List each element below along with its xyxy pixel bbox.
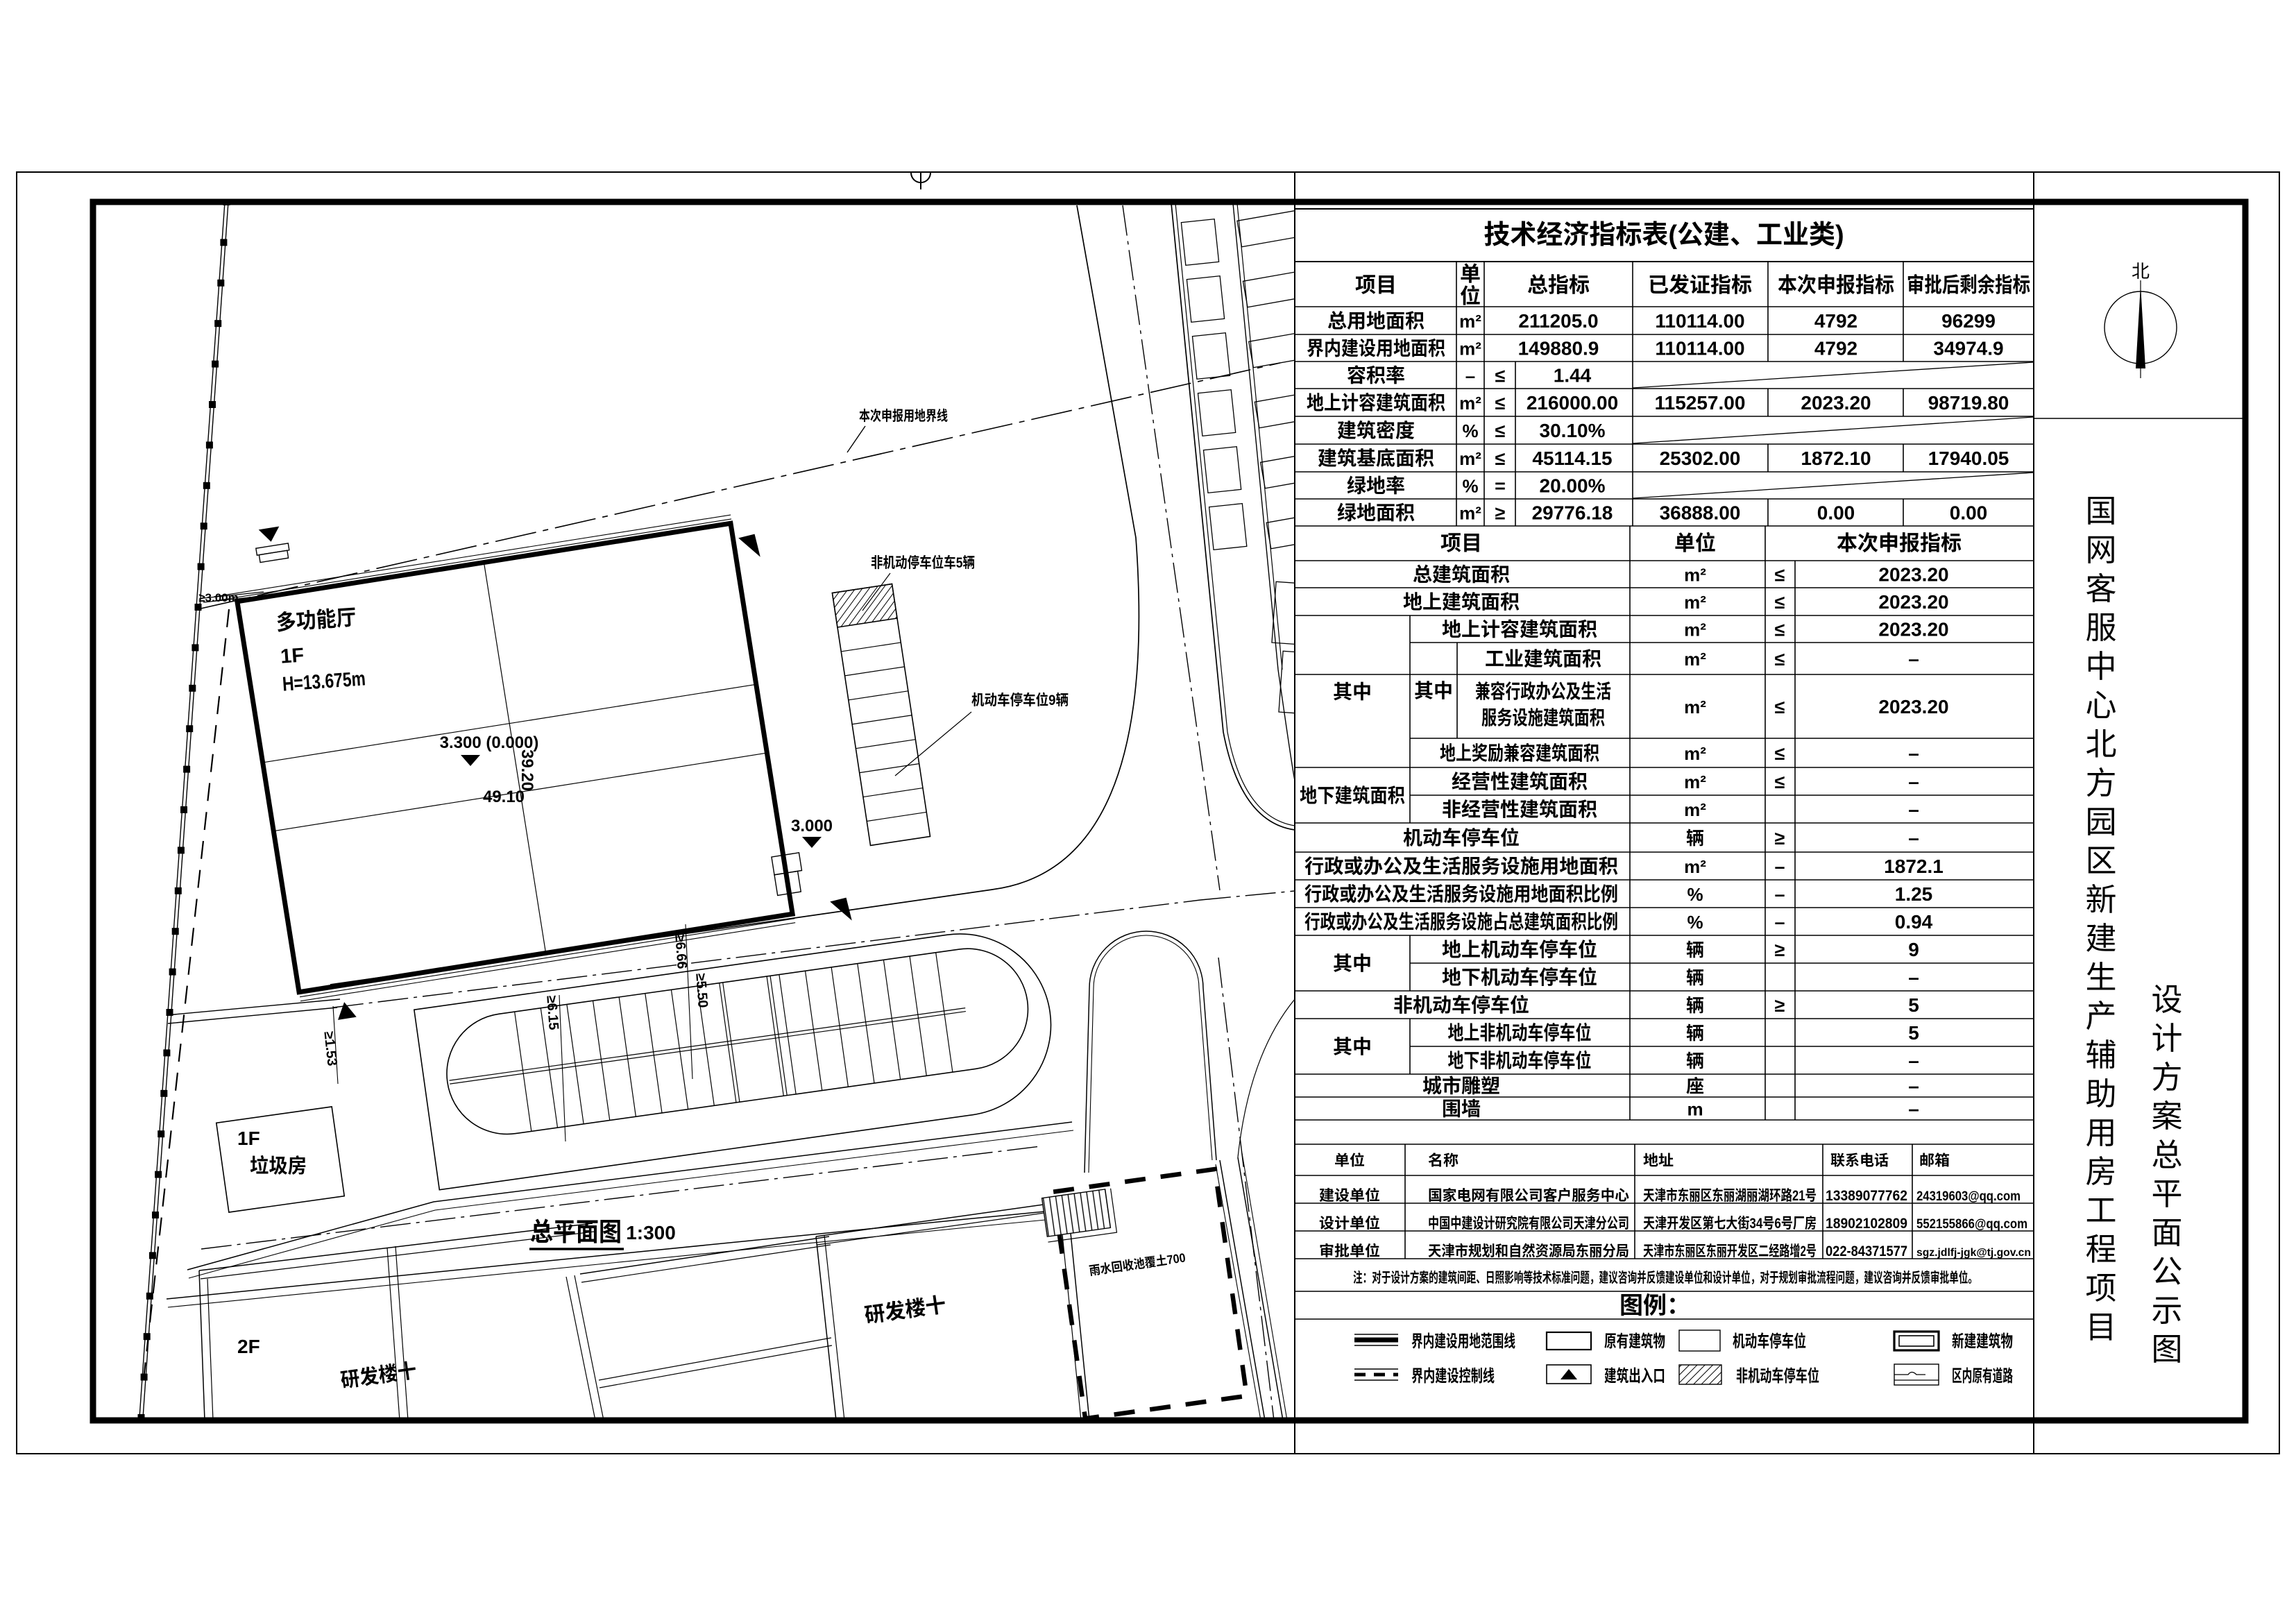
svg-text:sgz.jdlfj-jgk@tj.gov.cn: sgz.jdlfj-jgk@tj.gov.cn <box>1916 1247 2031 1259</box>
svg-text:天津市东丽区东丽开发区二经路增2号: 天津市东丽区东丽开发区二经路增2号 <box>1643 1243 1817 1259</box>
svg-text:≤: ≤ <box>1775 743 1785 764</box>
svg-text:–: – <box>1908 1098 1919 1120</box>
svg-text:地上非机动车停车位: 地上非机动车停车位 <box>1448 1021 1592 1044</box>
svg-text:m²: m² <box>1684 649 1706 670</box>
svg-text:17940.05: 17940.05 <box>1928 448 2009 469</box>
svg-text:其中: 其中 <box>1333 1036 1372 1057</box>
svg-text:绿地率: 绿地率 <box>1347 475 1405 497</box>
svg-text:注：对于设计方案的建筑间距、日照影响等技术标准问题，建议咨询: 注：对于设计方案的建筑间距、日照影响等技术标准问题，建议咨询并反馈建设单位和设计… <box>1353 1269 1978 1286</box>
svg-text:总指标: 总指标 <box>1527 274 1590 297</box>
svg-text:网: 网 <box>2085 532 2116 568</box>
svg-text:程: 程 <box>2085 1232 2116 1267</box>
svg-text:兼容行政办公及生活: 兼容行政办公及生活 <box>1475 681 1611 702</box>
svg-text:行政或办公及生活服务设施用地面积: 行政或办公及生活服务设施用地面积 <box>1304 855 1618 877</box>
svg-text:149880.9: 149880.9 <box>1518 338 1599 359</box>
svg-text:–: – <box>1774 856 1785 877</box>
svg-text:设: 设 <box>2151 982 2182 1017</box>
svg-text:心: 心 <box>2085 688 2116 723</box>
svg-text:≤: ≤ <box>1495 366 1506 386</box>
svg-text:≥6.15: ≥6.15 <box>543 995 561 1030</box>
svg-text:9: 9 <box>1908 939 1919 960</box>
svg-text:本次申报用地界线: 本次申报用地界线 <box>859 408 948 424</box>
svg-text:4792: 4792 <box>1814 310 1857 332</box>
svg-text:非机动车停车位: 非机动车停车位 <box>1393 994 1529 1016</box>
svg-text:≤: ≤ <box>1775 565 1785 586</box>
svg-text:产: 产 <box>2085 999 2116 1034</box>
svg-text:0.00: 0.00 <box>1950 502 1988 524</box>
svg-text:–: – <box>1774 912 1785 933</box>
svg-text:行政或办公及生活服务设施占总建筑面积比例: 行政或办公及生活服务设施占总建筑面积比例 <box>1304 910 1618 933</box>
svg-text:2023.20: 2023.20 <box>1878 696 1948 717</box>
svg-text:本次申报指标: 本次申报指标 <box>1778 274 1894 297</box>
svg-text:机动车停车位: 机动车停车位 <box>1403 826 1520 849</box>
svg-text:辆: 辆 <box>1686 1023 1704 1044</box>
svg-text:13389077762: 13389077762 <box>1826 1188 1907 1204</box>
svg-text:图: 图 <box>2151 1332 2182 1367</box>
svg-text:m²: m² <box>1459 393 1481 414</box>
svg-text:≤: ≤ <box>1495 448 1506 469</box>
svg-text:北: 北 <box>2132 261 2150 282</box>
svg-text:行政或办公及生活服务设施用地面积比例: 行政或办公及生活服务设施用地面积比例 <box>1304 883 1618 905</box>
svg-text:平: 平 <box>2151 1176 2182 1212</box>
svg-text:–: – <box>1908 799 1919 820</box>
svg-text:–: – <box>1908 1076 1919 1097</box>
svg-text:%: % <box>1687 912 1703 933</box>
svg-text:2023.20: 2023.20 <box>1878 619 1948 640</box>
svg-text:地上建筑面积: 地上建筑面积 <box>1403 591 1520 613</box>
svg-text:地上计容建筑面积: 地上计容建筑面积 <box>1307 392 1445 414</box>
svg-text:城市雕塑: 城市雕塑 <box>1422 1076 1500 1097</box>
svg-text:≥6.66: ≥6.66 <box>672 934 689 969</box>
svg-text:国: 国 <box>2085 493 2116 529</box>
svg-text:绿地面积: 绿地面积 <box>1337 502 1415 524</box>
svg-text:区内原有道路: 区内原有道路 <box>1952 1367 2013 1386</box>
svg-text:5: 5 <box>1908 1022 1919 1044</box>
svg-text:建筑基底面积: 建筑基底面积 <box>1318 448 1434 469</box>
svg-text:其中: 其中 <box>1333 681 1372 703</box>
svg-text:24319603@qq.com: 24319603@qq.com <box>1916 1189 2021 1204</box>
svg-text:1872.1: 1872.1 <box>1884 856 1944 877</box>
svg-text:地上机动车停车位: 地上机动车停车位 <box>1442 938 1597 960</box>
svg-text:房: 房 <box>2085 1154 2116 1189</box>
svg-text:1.44: 1.44 <box>1554 365 1592 386</box>
svg-text:机动车停车位9辆: 机动车停车位9辆 <box>971 692 1069 708</box>
svg-text:211205.0: 211205.0 <box>1518 310 1598 332</box>
svg-text:216000.00: 216000.00 <box>1527 392 1618 414</box>
svg-text:≥: ≥ <box>1495 503 1506 524</box>
svg-text:联系电话: 联系电话 <box>1830 1153 1889 1169</box>
svg-text:总: 总 <box>2151 1137 2182 1173</box>
svg-text:≤: ≤ <box>1495 420 1506 441</box>
svg-text:服: 服 <box>2085 610 2116 645</box>
svg-text:5: 5 <box>1908 994 1919 1016</box>
svg-text:辆: 辆 <box>1686 828 1704 849</box>
svg-text:非经营性建筑面积: 非经营性建筑面积 <box>1442 799 1597 820</box>
svg-text:1F: 1F <box>237 1128 260 1149</box>
svg-text:≥: ≥ <box>1775 940 1785 960</box>
svg-text:公: 公 <box>2151 1254 2182 1289</box>
svg-text:总用地面积: 总用地面积 <box>1327 310 1425 332</box>
svg-text:客: 客 <box>2085 571 2116 606</box>
svg-text:m²: m² <box>1459 448 1481 469</box>
svg-text:1F: 1F <box>280 644 305 668</box>
svg-text:110114.00: 110114.00 <box>1655 338 1744 359</box>
svg-text:m²: m² <box>1684 743 1706 764</box>
svg-text:≥: ≥ <box>1775 828 1785 849</box>
svg-text:项目: 项目 <box>1440 532 1482 555</box>
svg-text:服务设施建筑面积: 服务设施建筑面积 <box>1481 707 1605 729</box>
svg-text:18902102809: 18902102809 <box>1826 1216 1907 1232</box>
svg-text:园: 园 <box>2085 804 2116 840</box>
svg-text:–: – <box>1465 366 1475 386</box>
svg-text:39.20: 39.20 <box>518 749 536 791</box>
svg-text:0.94: 0.94 <box>1895 911 1933 933</box>
svg-text:目: 目 <box>2085 1309 2116 1345</box>
svg-text:m²: m² <box>1684 565 1706 586</box>
svg-text:邮箱: 邮箱 <box>1919 1153 1950 1169</box>
svg-text:区: 区 <box>2085 843 2116 878</box>
svg-text:新建建筑物: 新建建筑物 <box>1952 1332 2013 1351</box>
svg-text:其中: 其中 <box>1333 953 1372 974</box>
svg-text:位: 位 <box>1460 284 1481 308</box>
svg-text:项: 项 <box>2085 1271 2116 1306</box>
svg-text:中国中建设计研究院有限公司天津分公司: 中国中建设计研究院有限公司天津分公司 <box>1428 1215 1629 1232</box>
svg-text:m²: m² <box>1684 799 1706 820</box>
svg-text:图例：: 图例： <box>1619 1293 1690 1319</box>
svg-text:助: 助 <box>2085 1076 2116 1112</box>
svg-text:国家电网有限公司客户服务中心: 国家电网有限公司客户服务中心 <box>1428 1187 1629 1204</box>
svg-text:2F: 2F <box>237 1336 260 1357</box>
svg-text:≥5.50: ≥5.50 <box>692 973 710 1008</box>
svg-text:45114.15: 45114.15 <box>1532 448 1612 469</box>
svg-text:本次申报指标: 本次申报指标 <box>1837 532 1962 555</box>
svg-text:方: 方 <box>2085 765 2116 801</box>
svg-text:≤: ≤ <box>1775 772 1785 792</box>
svg-text:已发证指标: 已发证指标 <box>1648 274 1752 297</box>
svg-text:25302.00: 25302.00 <box>1660 448 1741 469</box>
svg-text:m²: m² <box>1459 503 1481 524</box>
svg-text:地下机动车停车位: 地下机动车停车位 <box>1442 966 1597 988</box>
svg-text:1:300: 1:300 <box>626 1222 676 1243</box>
svg-text:生: 生 <box>2085 960 2116 995</box>
svg-text:工业建筑面积: 工业建筑面积 <box>1485 648 1601 670</box>
svg-text:≤: ≤ <box>1775 592 1785 613</box>
svg-text:m²: m² <box>1684 772 1706 792</box>
svg-text:建筑密度: 建筑密度 <box>1337 420 1415 441</box>
svg-text:单: 单 <box>1460 263 1481 286</box>
svg-text:新: 新 <box>2085 882 2116 917</box>
svg-text:–: – <box>1908 827 1919 849</box>
svg-text:计: 计 <box>2151 1021 2182 1056</box>
svg-text:辆: 辆 <box>1686 940 1704 960</box>
svg-text:天津市规划和自然资源局东丽分局: 天津市规划和自然资源局东丽分局 <box>1428 1243 1629 1259</box>
svg-text:天津市东丽区东丽湖丽湖环路21号: 天津市东丽区东丽湖丽湖环路21号 <box>1643 1187 1817 1204</box>
svg-text:建筑出入口: 建筑出入口 <box>1604 1367 1665 1386</box>
svg-text:审批后剩余指标: 审批后剩余指标 <box>1907 274 2030 297</box>
svg-text:=: = <box>1495 476 1506 497</box>
svg-text:3.000: 3.000 <box>791 817 833 835</box>
svg-text:115257.00: 115257.00 <box>1655 392 1746 414</box>
svg-text:中: 中 <box>2085 649 2116 684</box>
svg-text:界内建设控制线: 界内建设控制线 <box>1411 1367 1495 1386</box>
svg-text:北: 北 <box>2085 726 2116 762</box>
svg-text:项目: 项目 <box>1355 274 1397 297</box>
svg-text:地上计容建筑面积: 地上计容建筑面积 <box>1442 619 1597 640</box>
svg-text:34974.9: 34974.9 <box>1933 338 2003 359</box>
svg-text:–: – <box>1774 884 1785 905</box>
svg-text:%: % <box>1462 476 1478 497</box>
svg-text:座: 座 <box>1686 1076 1704 1097</box>
svg-text:m: m <box>1687 1099 1703 1120</box>
svg-text:天津开发区第七大街34号6号厂房: 天津开发区第七大街34号6号厂房 <box>1643 1216 1817 1232</box>
svg-text:36888.00: 36888.00 <box>1660 502 1741 524</box>
svg-text:用: 用 <box>2085 1115 2116 1150</box>
svg-text:总建筑面积: 总建筑面积 <box>1413 564 1510 586</box>
svg-text:其中: 其中 <box>1414 680 1453 702</box>
svg-text:≤: ≤ <box>1495 393 1506 414</box>
svg-text:≥: ≥ <box>1775 995 1785 1016</box>
svg-text:0.00: 0.00 <box>1817 502 1855 524</box>
svg-text:建设单位: 建设单位 <box>1319 1187 1380 1204</box>
svg-text:技术经济指标表(公建、工业类): 技术经济指标表(公建、工业类) <box>1483 221 1844 250</box>
svg-text:非机动车停车位: 非机动车停车位 <box>1736 1366 1819 1386</box>
svg-text:案: 案 <box>2151 1098 2182 1134</box>
svg-text:≤: ≤ <box>1775 620 1785 640</box>
svg-text:≤: ≤ <box>1775 697 1785 717</box>
svg-text:≥3.00m: ≥3.00m <box>198 591 239 604</box>
svg-text:示: 示 <box>2151 1293 2182 1328</box>
svg-text:辆: 辆 <box>1686 995 1704 1016</box>
svg-text:–: – <box>1908 648 1919 670</box>
svg-text:容积率: 容积率 <box>1347 365 1405 386</box>
svg-text:96299: 96299 <box>1941 310 1996 332</box>
svg-text:地址: 地址 <box>1643 1153 1674 1169</box>
svg-text:m²: m² <box>1684 592 1706 613</box>
svg-text:设计单位: 设计单位 <box>1319 1215 1380 1232</box>
svg-text:2023.20: 2023.20 <box>1878 564 1948 586</box>
svg-text:%: % <box>1687 884 1703 905</box>
svg-text:原有建筑物: 原有建筑物 <box>1604 1332 1665 1351</box>
svg-text:m²: m² <box>1684 620 1706 640</box>
svg-text:辆: 辆 <box>1686 1051 1704 1071</box>
svg-text:面: 面 <box>2151 1215 2182 1250</box>
svg-text:方: 方 <box>2151 1060 2182 1095</box>
svg-text:地下建筑面积: 地下建筑面积 <box>1300 785 1405 806</box>
svg-text:30.10%: 30.10% <box>1540 420 1606 441</box>
svg-text:–: – <box>1908 771 1919 792</box>
svg-text:4792: 4792 <box>1814 338 1857 359</box>
svg-text:机动车停车位: 机动车停车位 <box>1733 1332 1806 1351</box>
svg-text:界内建设用地面积: 界内建设用地面积 <box>1307 338 1445 359</box>
svg-text:≤: ≤ <box>1775 649 1785 670</box>
svg-text:29776.18: 29776.18 <box>1532 502 1613 524</box>
svg-text:–: – <box>1908 1050 1919 1071</box>
svg-text:1.25: 1.25 <box>1895 883 1933 905</box>
svg-text:20.00%: 20.00% <box>1540 475 1606 497</box>
svg-text:非机动停车位车5辆: 非机动停车位车5辆 <box>871 554 975 571</box>
svg-text:m²: m² <box>1684 697 1706 717</box>
svg-text:界内建设用地范围线: 界内建设用地范围线 <box>1411 1332 1515 1351</box>
svg-text:m²: m² <box>1459 311 1481 332</box>
svg-text:单位: 单位 <box>1334 1153 1365 1169</box>
svg-text:工: 工 <box>2085 1193 2116 1228</box>
svg-text:110114.00: 110114.00 <box>1655 310 1744 332</box>
svg-text:辅: 辅 <box>2085 1037 2116 1073</box>
svg-text:垃圾房: 垃圾房 <box>250 1155 307 1178</box>
svg-text:2023.20: 2023.20 <box>1878 591 1948 613</box>
svg-text:地下非机动车停车位: 地下非机动车停车位 <box>1448 1049 1592 1071</box>
svg-text:单位: 单位 <box>1674 532 1716 555</box>
svg-text:49.10: 49.10 <box>483 788 525 806</box>
svg-text:名称: 名称 <box>1428 1153 1459 1169</box>
svg-text:围墙: 围墙 <box>1442 1098 1481 1120</box>
svg-text:98719.80: 98719.80 <box>1928 392 2009 414</box>
svg-text:–: – <box>1908 967 1919 988</box>
svg-text:2023.20: 2023.20 <box>1801 392 1871 414</box>
svg-text:经营性建筑面积: 经营性建筑面积 <box>1452 771 1588 792</box>
svg-text:建: 建 <box>2085 921 2116 956</box>
svg-text:总平面图: 总平面图 <box>530 1218 622 1246</box>
svg-text:1872.10: 1872.10 <box>1801 448 1871 469</box>
svg-text:m²: m² <box>1459 339 1481 359</box>
svg-text:辆: 辆 <box>1686 967 1704 988</box>
svg-text:%: % <box>1462 420 1478 441</box>
svg-text:022-84371577: 022-84371577 <box>1826 1243 1907 1259</box>
svg-text:m²: m² <box>1684 856 1706 877</box>
svg-text:552155866@qq.com: 552155866@qq.com <box>1916 1217 2027 1232</box>
svg-text:地上奖励兼容建筑面积: 地上奖励兼容建筑面积 <box>1440 742 1599 764</box>
svg-text:审批单位: 审批单位 <box>1319 1243 1380 1259</box>
svg-text:–: – <box>1908 742 1919 764</box>
